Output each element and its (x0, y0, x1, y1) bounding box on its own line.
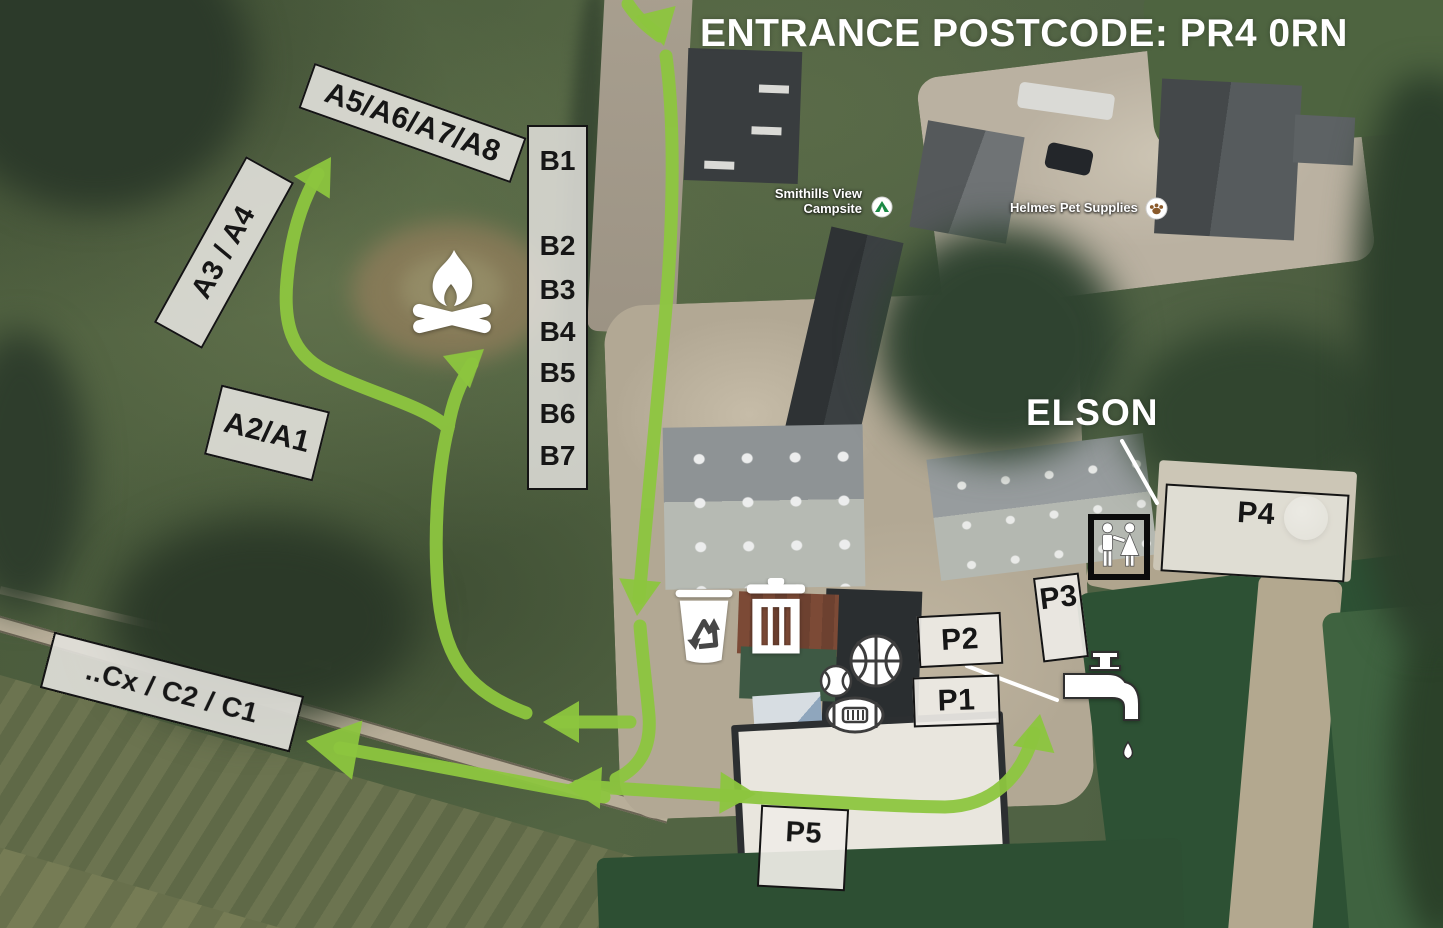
water-tap-icon[interactable] (1056, 650, 1148, 767)
waste-bin-icon[interactable] (744, 578, 808, 663)
farmhouse-roof (909, 120, 1024, 243)
campsite-pin-icon[interactable] (871, 196, 893, 223)
pitch-label-b2[interactable]: B2 (529, 230, 586, 262)
pitch-label-b7[interactable]: B7 (529, 440, 586, 472)
campsite-map: Smithills View Campsite Helmes Pet Suppl… (0, 0, 1443, 928)
basketball-icon[interactable] (848, 633, 904, 694)
elson-label: ELSON (1026, 392, 1158, 434)
pitch-label-b5[interactable]: B5 (529, 357, 586, 389)
map-label-pet-supplies[interactable]: Helmes Pet Supplies (1010, 200, 1150, 215)
parking-label-p2[interactable]: P2 (917, 612, 1004, 668)
entrance-road (587, 0, 693, 335)
trees (1356, 76, 1443, 642)
map-label-campsite[interactable]: Smithills View Campsite (742, 186, 862, 216)
pitch-label-b4[interactable]: B4 (529, 316, 586, 348)
farmhouse-roof (1154, 78, 1302, 240)
pitch-label-b1[interactable]: B1 (529, 145, 586, 177)
pitch-label-b3[interactable]: B3 (529, 274, 586, 306)
barn-roof (684, 48, 803, 184)
pet-supplies-pin-icon[interactable] (1145, 197, 1168, 225)
entrance-postcode-title: ENTRANCE POSTCODE: PR4 0RN (700, 12, 1348, 56)
rugby-ball-icon[interactable] (824, 694, 886, 741)
parking-label-p1[interactable]: P1 (912, 674, 1001, 727)
campfire-icon[interactable] (404, 246, 500, 351)
recycling-bin-icon[interactable] (662, 583, 746, 670)
pitch-column-b[interactable]: B1 B2 B3 B4 B5 B6 B7 (527, 125, 588, 490)
toilets-icon[interactable] (1088, 514, 1150, 580)
barn-roof (663, 424, 866, 589)
parking-label-p4[interactable]: P4 (1160, 483, 1349, 582)
pitch-label-b6[interactable]: B6 (529, 398, 586, 430)
parking-label-p5[interactable]: P5 (757, 805, 849, 891)
outbuilding-roof (1293, 114, 1355, 165)
